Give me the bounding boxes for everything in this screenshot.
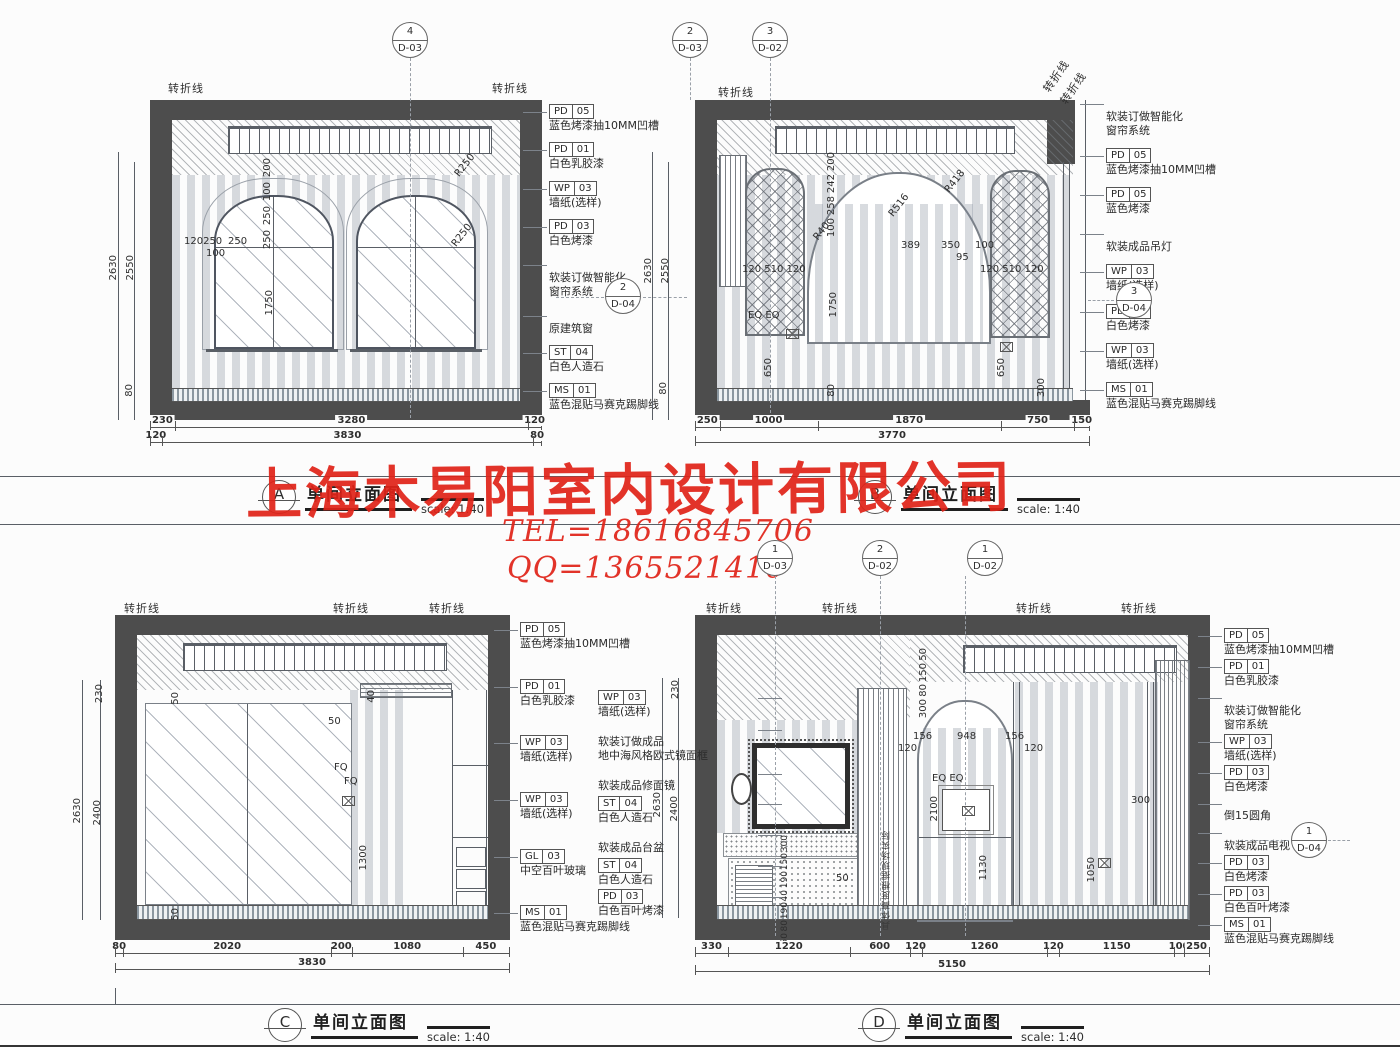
material-code: PD03 (1224, 855, 1269, 870)
fold-line-label: 转折线 (492, 80, 528, 96)
material-callout: MS01 蓝色混贴马赛克踢脚线 (1224, 917, 1389, 946)
dim-label: 100 (262, 182, 273, 201)
centerline (1240, 840, 1289, 841)
material-callout: 软装成品台盆 (598, 827, 758, 855)
leader-line (1198, 894, 1222, 895)
material-code: PD01 (1224, 659, 1269, 674)
material-callout: PD03 白色烤漆 (1224, 765, 1389, 794)
material-callout: PD03 白色烤漆 (1224, 855, 1389, 884)
leader-line (1080, 195, 1104, 196)
material-code: PD05 (520, 622, 565, 637)
material-callout: 倒15圆角 (1224, 796, 1389, 824)
leader-line (494, 857, 518, 858)
dim-label: 250 (228, 236, 247, 247)
dim-label: 120 (1024, 743, 1043, 754)
dim-label: 258 (826, 196, 837, 215)
material-code: PD05 (549, 104, 594, 119)
glass-panel (145, 703, 352, 905)
leader-line (1080, 156, 1104, 157)
material-callout: PD01 白色乳胶漆 (1224, 659, 1389, 688)
leader-line (1080, 351, 1104, 352)
wall-poche (115, 615, 510, 635)
watermark-qq: QQ=1365521410 (507, 551, 785, 586)
leader-line (1080, 272, 1104, 273)
material-code: PD03 (1224, 765, 1269, 780)
material-code: GL03 (520, 849, 565, 864)
detail-ref-circle: 2D-03 (672, 22, 708, 58)
dim-label: 50 (836, 873, 849, 884)
dim-label: 2630 (108, 255, 119, 280)
dim-label: 50 (170, 908, 181, 921)
leader-line (494, 800, 518, 801)
cabinet-line (452, 837, 488, 838)
dim-label: 2630 (643, 258, 654, 283)
dim-label: 156 (913, 731, 932, 742)
eq-label: FQ (334, 762, 348, 773)
detail-ref-circle: 3D-02 (752, 22, 788, 58)
dim-label: 50 (918, 648, 929, 661)
detail-ref-circle: 1D-03 (757, 540, 793, 576)
leader-line (523, 353, 547, 354)
wall-poche (150, 100, 172, 420)
drawing-scale: scale: 1:40 (1017, 498, 1080, 516)
dim-label: 242 (826, 174, 837, 193)
material-callout: MS01 蓝色混贴马赛克踢脚线 (1106, 382, 1271, 411)
leader-line (758, 730, 782, 731)
dim-line (118, 152, 119, 420)
detail-ref-circle: 4D-03 (392, 22, 428, 58)
curtain-valance (963, 645, 1177, 673)
dim-label: 190 (780, 871, 790, 888)
dim-label: 1300 (358, 845, 369, 870)
fold-line-label: 转折线 (168, 80, 204, 96)
section-ref-circle: 1D-04 (1291, 822, 1327, 858)
material-code: WP03 (520, 735, 568, 750)
window-sill (350, 349, 482, 352)
socket-symbol (1000, 342, 1013, 352)
drawing-scale: scale: 1:40 (427, 1026, 490, 1044)
fold-line-label: 转折线 (706, 600, 742, 616)
leader-line (523, 227, 547, 228)
site-note: 具体高度根据现场实际 (880, 800, 893, 930)
material-code: PD01 (520, 679, 565, 694)
dim-label: 120 (898, 743, 917, 754)
material-code: ST04 (598, 796, 642, 811)
dim-label: 80 (780, 920, 790, 931)
dim-label: 300 (1131, 795, 1150, 806)
dim-label: 1130 (978, 855, 989, 880)
dim-label: 1050 (1086, 857, 1097, 882)
fold-line-label: 转折线 (718, 84, 754, 100)
leader-line (523, 150, 547, 151)
leader-line (1198, 833, 1222, 834)
socket-symbol (342, 796, 355, 806)
material-callout: PD05 蓝色烤漆 (1106, 187, 1271, 216)
dim-label: 1750 (264, 290, 275, 315)
dim-label: 948 (957, 731, 976, 742)
dim-label: 120 510 120 (742, 264, 806, 275)
leader-line (1198, 925, 1222, 926)
fold-line-label: 转折线 (429, 600, 465, 616)
material-code: WP03 (598, 690, 646, 705)
eq-label: EQ EQ (748, 310, 780, 321)
dim-label: 2400 (92, 800, 103, 825)
window-glass (358, 197, 474, 347)
wall-poche (695, 100, 1073, 120)
section-ref-circle: 2D-04 (605, 278, 641, 314)
dim-line (134, 162, 135, 420)
section-ref-circle: 3D-04 (1116, 282, 1152, 318)
dim-label: 190 (780, 902, 790, 919)
mosaic-skirting (172, 388, 520, 402)
detail-ref-circle: 1D-02 (967, 540, 1003, 576)
material-callout: WP03 墙纸(选样) (1224, 734, 1389, 763)
leader-line (494, 743, 518, 744)
material-callout: PD03 白色烤漆 (549, 219, 669, 248)
centerline (965, 576, 966, 936)
drawing-title-block: C 单间立面图 scale: 1:40 (268, 1008, 490, 1044)
material-callout: ST04 白色人造石 (549, 345, 669, 374)
drawing-title: 单间立面图 (905, 1008, 1012, 1039)
detail-ref-circle: 2D-02 (862, 540, 898, 576)
dim-label: 300 (780, 835, 790, 852)
centerline (556, 297, 604, 298)
title-circle: D (862, 1008, 896, 1042)
material-callout: PD05 蓝色烤漆抽10MM凹槽 (1106, 148, 1271, 177)
ornate-mirror (752, 743, 850, 829)
material-callout: PD03 白色百叶烤漆 (598, 889, 758, 918)
panel-divider (247, 704, 248, 904)
material-code: WP03 (520, 792, 568, 807)
leader-line (758, 866, 782, 867)
window-mullion (273, 197, 274, 347)
dim-label: 2630 (72, 798, 83, 823)
material-code: PD05 (1106, 148, 1151, 163)
dim-label: 80 (826, 384, 837, 397)
ref-circle-row: 4D-03 (392, 22, 428, 58)
elevation-c (115, 615, 510, 940)
dim-stack: 5015080300 (918, 648, 929, 718)
dim-label: 300 (918, 699, 929, 718)
curtain-fold-line (1069, 162, 1070, 400)
leader-line (1198, 636, 1222, 637)
material-code: PD03 (549, 219, 594, 234)
callout-column-b: 软装订做智能化窗帘系统 PD05 蓝色烤漆抽10MM凹槽 PD05 蓝色烤漆 软… (1106, 96, 1271, 411)
cad-line (1085, 100, 1086, 400)
leader-line (1080, 234, 1104, 235)
dim-label: 150 (918, 663, 929, 682)
arched-window (356, 195, 476, 349)
material-code: PD03 (598, 889, 643, 904)
elevation-b (695, 100, 1090, 420)
mosaic-skirting (137, 905, 488, 920)
wall-poche (520, 100, 542, 420)
curtain-valance (228, 126, 492, 154)
material-callout: PD05 蓝色烤漆抽10MM凹槽 (520, 622, 670, 651)
material-callout: 软装订做成品地中海风格欧式镜面框 (598, 722, 758, 763)
callout-column-d-right: PD05 蓝色烤漆抽10MM凹槽 PD01 白色乳胶漆 软装订做智能化窗帘系统 … (1224, 628, 1389, 946)
material-callout: PD01 白色乳胶漆 (549, 142, 669, 171)
material-callout: ST04 白色人造石 (598, 796, 758, 825)
dim-label: 389 (901, 240, 920, 251)
curtain-fold-line (1063, 162, 1064, 400)
drawing-scale: scale: 1:40 (1021, 1026, 1084, 1044)
pilaster-line (1013, 682, 1014, 918)
leader-line (758, 698, 782, 699)
material-code: PD05 (1224, 628, 1269, 643)
leader-line (1198, 667, 1222, 668)
socket-symbol (786, 329, 799, 339)
wall-poche (150, 100, 542, 120)
leader-line (1080, 104, 1104, 105)
window-sill (206, 349, 338, 352)
wall-poche (1188, 615, 1210, 940)
wallpaper-fill (815, 204, 983, 342)
dim-label: 100 (206, 248, 225, 259)
centerline (690, 58, 691, 100)
curtain-valance (183, 643, 447, 671)
leader-line (1198, 698, 1222, 699)
centerline (1328, 840, 1350, 841)
dim-stack: 300150190401908050 (780, 835, 790, 944)
dim-label: 80 (658, 382, 669, 395)
centerline (410, 58, 411, 418)
dim-chain: 330122060012012601201150100250 (695, 946, 1210, 958)
material-code: MS01 (1106, 382, 1153, 397)
wall-poche (115, 615, 137, 940)
fold-line-label: 转折线 (822, 600, 858, 616)
fold-line-label: 转折线 (333, 600, 369, 616)
material-callout: WP03 墙纸(选样) (1106, 343, 1271, 372)
dim-label: 350 (941, 240, 960, 251)
dim-label: 50 (328, 716, 341, 727)
leader-line (494, 630, 518, 631)
eq-label: EQ EQ (932, 773, 964, 784)
cabinet-line (452, 765, 488, 766)
leader-line (1198, 742, 1222, 743)
material-callout: PD05 蓝色烤漆抽10MM凹槽 (1224, 628, 1389, 657)
material-code: ST04 (549, 345, 593, 360)
wall-poche (115, 918, 510, 940)
dim-label: 120250 (184, 236, 222, 247)
material-code: PD05 (1106, 187, 1151, 202)
wallpaper-fill (350, 690, 410, 905)
eq-label: FQ (344, 776, 358, 787)
dim-label: 150 (780, 853, 790, 870)
leader-line (1080, 312, 1104, 313)
ref-circle-row: 1D-032D-021D-02 (757, 540, 1003, 576)
material-code: PD01 (549, 142, 594, 157)
material-callout: WP03 墙纸(选样) (549, 181, 669, 210)
separator-line (0, 1004, 1400, 1005)
window-transom (216, 247, 332, 248)
pilaster-line (1019, 682, 1020, 918)
leader-line (494, 913, 518, 914)
dim-chain: 120383080 (150, 435, 542, 447)
leader-line (1198, 804, 1222, 805)
curtain-panel (1155, 660, 1190, 920)
dim-label: 1750 (828, 292, 839, 317)
dim-label: 40 (366, 690, 377, 703)
fold-line-label: 转折线 (124, 600, 160, 616)
leader-line (523, 112, 547, 113)
dim-label: 95 (956, 252, 969, 263)
dim-label: 120 510 120 (980, 264, 1044, 275)
elevation-a (150, 100, 542, 420)
dim-label: 40 (780, 890, 790, 901)
curtain-valance (775, 126, 1015, 154)
dim-label: 80 (124, 384, 135, 397)
dim-label: 2550 (660, 258, 671, 283)
window-glass (216, 197, 332, 347)
dim-chain: 5150 (695, 964, 1210, 976)
leader-line (1080, 390, 1104, 391)
material-code: MS01 (1224, 917, 1271, 932)
fold-line-label: 转折线 (1121, 600, 1157, 616)
dim-label: 250 (262, 206, 273, 225)
dim-label: 156 (1005, 731, 1024, 742)
leader-line (494, 687, 518, 688)
dim-label: 300 (1036, 378, 1047, 397)
material-callout: PD05 蓝色烤漆抽10MM凹槽 (549, 104, 669, 133)
material-callout: 软装订做智能化窗帘系统 (1106, 96, 1271, 137)
material-callout: PD03 白色百叶烤漆 (1224, 886, 1389, 915)
dim-label: 2100 (929, 796, 940, 821)
callout-column-d-left: WP03 墙纸(选样) 软装订做成品地中海风格欧式镜面框 软装成品修面镜 ST0… (598, 690, 758, 918)
drawing-title: 单间立面图 (311, 1008, 418, 1039)
material-code: WP03 (549, 181, 597, 196)
material-callout: WP03 墙纸(选样) (598, 690, 758, 719)
centerline (1088, 300, 1114, 301)
wall-poche (488, 615, 510, 940)
leader-line (758, 804, 782, 805)
wall-poche (695, 615, 1210, 635)
material-code: WP03 (1106, 264, 1154, 279)
pilaster-line (1153, 682, 1154, 918)
material-callout: 原建筑窗 (549, 308, 669, 336)
cabinet-line (452, 690, 453, 918)
dim-label: 650 (763, 358, 774, 377)
material-callout: 软装订做智能化窗帘系统 (1224, 690, 1389, 731)
material-code: PD03 (1224, 886, 1269, 901)
socket-symbol (962, 806, 975, 816)
material-code: MS01 (549, 383, 596, 398)
material-code: MS01 (520, 905, 567, 920)
ref-circle-row: 2D-033D-02 (672, 22, 788, 58)
lattice-panel (990, 170, 1050, 338)
drawer-front (456, 847, 486, 867)
material-code: WP03 (1224, 734, 1272, 749)
leader-line (523, 391, 547, 392)
dim-label: 100 (975, 240, 994, 251)
leader-line (523, 316, 547, 317)
leader-line (758, 835, 782, 836)
dim-label: 50 (170, 692, 181, 705)
title-circle: C (268, 1008, 302, 1042)
socket-symbol (1098, 858, 1111, 868)
drawing-title-block: D 单间立面图 scale: 1:40 (862, 1008, 1084, 1044)
material-callout: 软装成品吊灯 (1106, 226, 1271, 254)
cad-sheet: 4D-03 转折线 转折线 200100250250 120250 250 10… (0, 0, 1400, 1050)
material-callout: MS01 蓝色混贴马赛克踢脚线 (549, 383, 669, 412)
centerline (775, 576, 776, 936)
fold-line-label: 转折线 (1016, 600, 1052, 616)
leader-line (523, 189, 547, 190)
material-code: ST04 (598, 858, 642, 873)
dim-chain: 3830 (115, 962, 510, 974)
material-callout: 软装成品修面镜 (598, 766, 758, 794)
dim-label: 2550 (125, 255, 136, 280)
wall-poche (695, 100, 717, 420)
dim-stack: 200100250250 (262, 158, 273, 249)
separator-line (115, 988, 116, 1004)
leader-line (758, 774, 782, 775)
separator-line (0, 1045, 1400, 1047)
material-callout: ST04 白色人造石 (598, 858, 758, 887)
dim-label: 250 (262, 230, 273, 249)
dim-line (652, 152, 653, 420)
arched-window (214, 195, 334, 349)
dim-label: 80 (918, 684, 929, 697)
dim-label: 230 (94, 684, 105, 703)
drawer-front (456, 869, 486, 889)
centerline (643, 297, 687, 298)
material-code: WP03 (1106, 343, 1154, 358)
dim-label: 650 (996, 358, 1007, 377)
leader-line (1198, 773, 1222, 774)
leader-line (523, 265, 547, 266)
dim-label: 200 (826, 152, 837, 171)
leader-line (1198, 863, 1222, 864)
window-mullion (415, 197, 416, 347)
dim-label: 200 (262, 158, 273, 177)
cabinet-line (486, 690, 487, 918)
leader-line (758, 897, 782, 898)
